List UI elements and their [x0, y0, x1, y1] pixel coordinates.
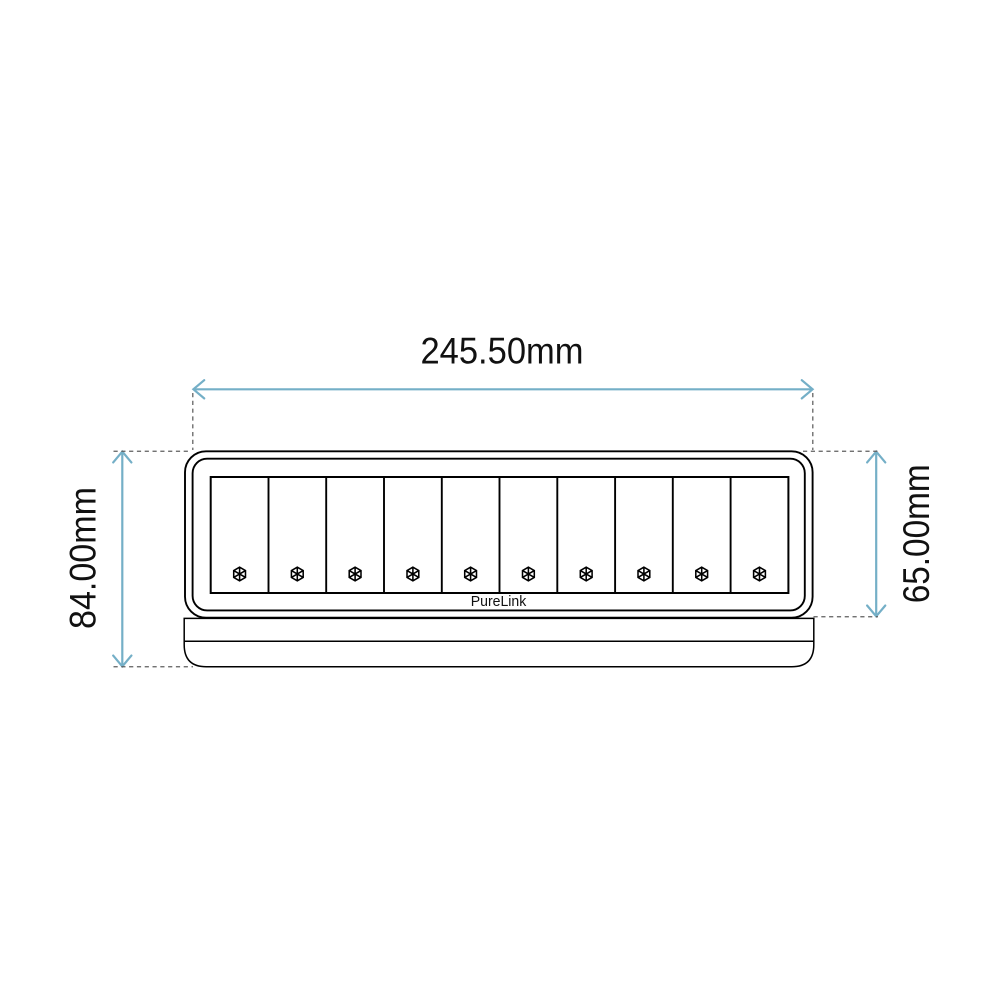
svg-text:84.00mm: 84.00mm: [63, 487, 104, 629]
svg-text:PureLink: PureLink: [471, 593, 527, 610]
svg-text:65.00mm: 65.00mm: [896, 464, 937, 603]
svg-text:245.50mm: 245.50mm: [421, 331, 584, 372]
